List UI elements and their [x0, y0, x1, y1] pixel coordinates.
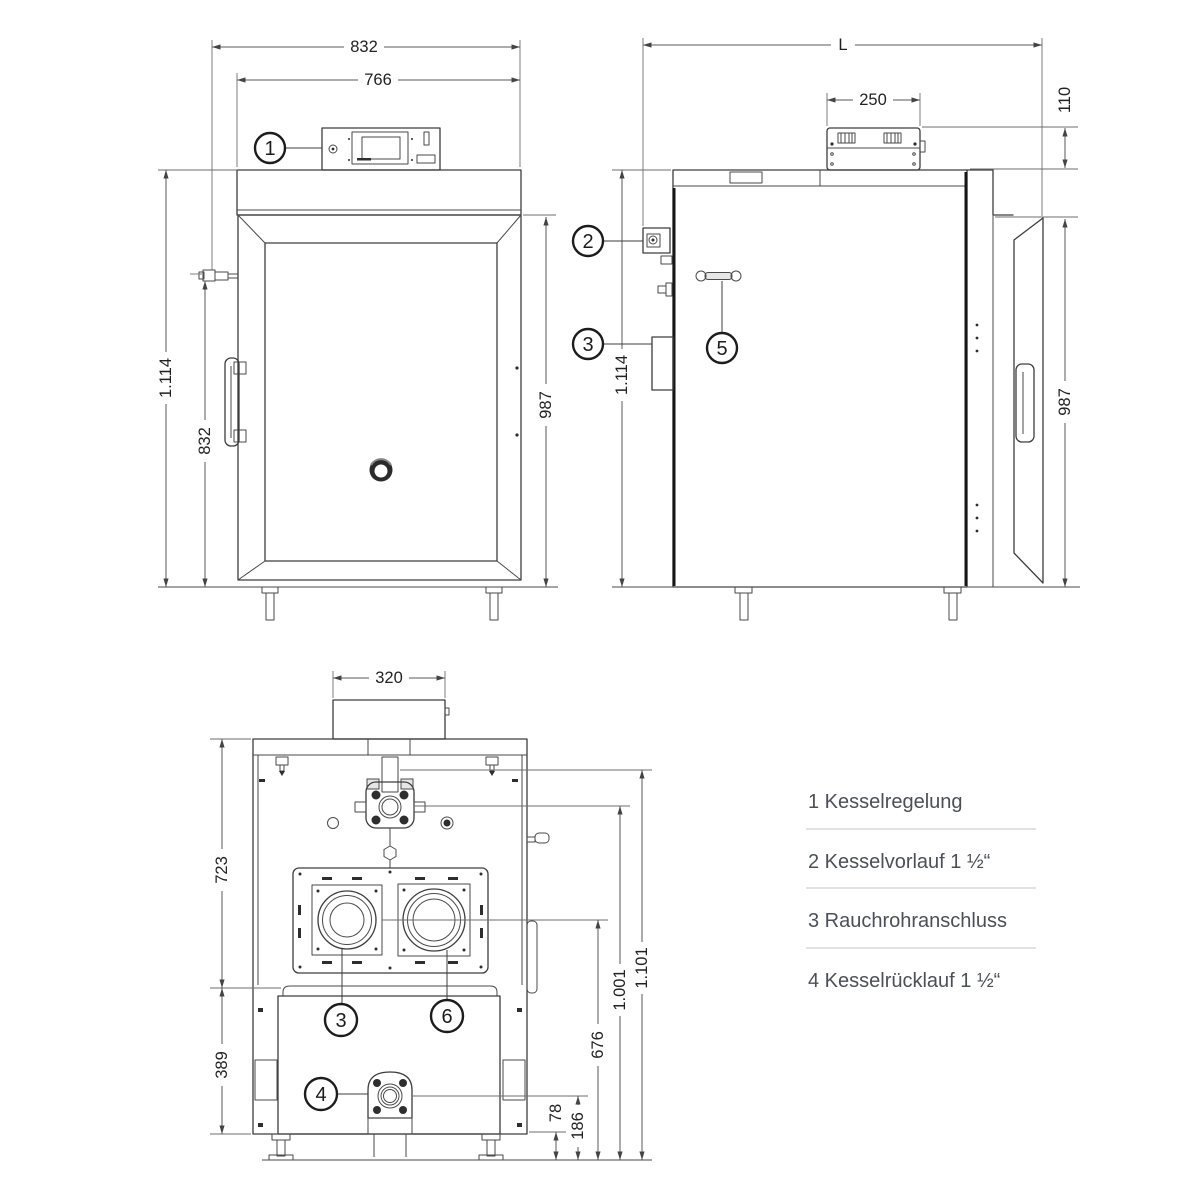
- rear-flow-flange-assembly: [355, 757, 425, 828]
- dim-side-height-body: 987: [995, 217, 1078, 587]
- front-control-panel: [322, 128, 440, 170]
- dim-front-height-body: 987: [523, 215, 556, 587]
- callout-4-number: 4: [315, 1084, 326, 1106]
- callout-4: 4: [305, 1078, 368, 1110]
- callout-2-number: 2: [582, 231, 593, 253]
- dim-label-250: 250: [859, 91, 887, 109]
- legend-item-1: 1 Kesselregelung: [808, 791, 963, 813]
- rear-sensor-bolt: [441, 817, 453, 829]
- rear-hex-plug: [384, 828, 396, 868]
- dim-label-723: 723: [213, 856, 231, 884]
- dim-label-1001: 1.001: [611, 969, 629, 1010]
- dim-label-766: 766: [364, 71, 392, 89]
- side-flue-stub: [652, 337, 673, 390]
- callout-1-number: 1: [264, 138, 275, 160]
- rear-return-flange: [368, 1072, 412, 1157]
- dim-label-987-front: 987: [537, 391, 555, 419]
- dim-label-676: 676: [589, 1031, 607, 1059]
- front-door-knob: [370, 459, 393, 482]
- dim-rear-lower-height: 389: [210, 988, 251, 1134]
- boiler-technical-drawing: 832 766 1.114 832: [0, 0, 1200, 1200]
- vent-grille-right: [884, 133, 901, 143]
- callout-3-side-number: 3: [582, 334, 593, 356]
- dim-side-panel-width: 250: [827, 91, 920, 126]
- dim-front-height-fitting: 832: [190, 274, 214, 587]
- side-flow-flange: [643, 228, 672, 264]
- dim-label-110: 110: [1056, 87, 1074, 113]
- dim-side-height-total: 1.114: [612, 170, 671, 587]
- dim-side-length: L: [643, 36, 1042, 226]
- dim-label-1114-front: 1.114: [157, 358, 175, 398]
- front-door-handle: [225, 358, 246, 446]
- rear-flue-plate: [293, 868, 488, 973]
- callout-5: 5: [707, 281, 737, 363]
- dim-label-78: 78: [547, 1104, 565, 1122]
- dim-label-1114-side: 1.114: [613, 355, 631, 395]
- vent-grille-left: [838, 133, 855, 143]
- drawing-canvas: 832 766 1.114 832: [0, 0, 1200, 1200]
- callout-3-rear-number: 3: [335, 1010, 346, 1032]
- legend-item-2: 2 Kesselvorlauf 1 ½“: [808, 851, 990, 873]
- legend-item-4: 4 Kesselrücklauf 1 ½“: [808, 970, 1000, 992]
- callout-2: 2: [573, 226, 643, 256]
- dim-label-L: L: [838, 36, 847, 54]
- dim-rear-flue-width: 320: [333, 669, 445, 698]
- callout-6: 6: [431, 950, 463, 1032]
- dim-rear-upper-height: 723: [210, 739, 281, 988]
- front-body-outline: [158, 170, 558, 620]
- flue-opening-left: [312, 885, 382, 955]
- side-body-outline: [612, 170, 1080, 620]
- side-view: L 250 110 1.114: [573, 36, 1080, 620]
- dim-label-1101: 1.101: [633, 947, 651, 988]
- dim-label-987-side: 987: [1056, 388, 1074, 416]
- callout-1: 1: [255, 133, 322, 163]
- hanger-bolt-right: [486, 757, 498, 776]
- dim-rear-base-height: 78: [529, 1098, 566, 1160]
- dim-label-186: 186: [569, 1112, 587, 1140]
- cleaning-tool: [696, 271, 741, 281]
- callout-6-number: 6: [441, 1006, 452, 1028]
- dim-label-832-width: 832: [350, 38, 378, 56]
- side-thermo-screw: [658, 283, 672, 296]
- side-control-panel: [827, 128, 925, 170]
- callout-5-number: 5: [716, 338, 727, 360]
- dim-label-832-height: 832: [196, 427, 214, 455]
- dim-side-panel-height: 110: [922, 80, 1078, 169]
- front-view: 832 766 1.114 832: [157, 38, 558, 620]
- rear-view: 320 723 389 676: [210, 669, 652, 1160]
- rear-vent-hole: [328, 818, 339, 829]
- legend: 1 Kesselregelung 2 Kesselvorlauf 1 ½“ 3 …: [806, 791, 1036, 992]
- hanger-bolt-left: [276, 757, 288, 776]
- front-side-fitting: [199, 270, 238, 281]
- legend-item-3: 3 Rauchrohranschluss: [808, 910, 1007, 932]
- dim-label-389: 389: [213, 1051, 231, 1079]
- callout-3-side: 3: [573, 329, 652, 359]
- dim-label-320: 320: [375, 669, 403, 687]
